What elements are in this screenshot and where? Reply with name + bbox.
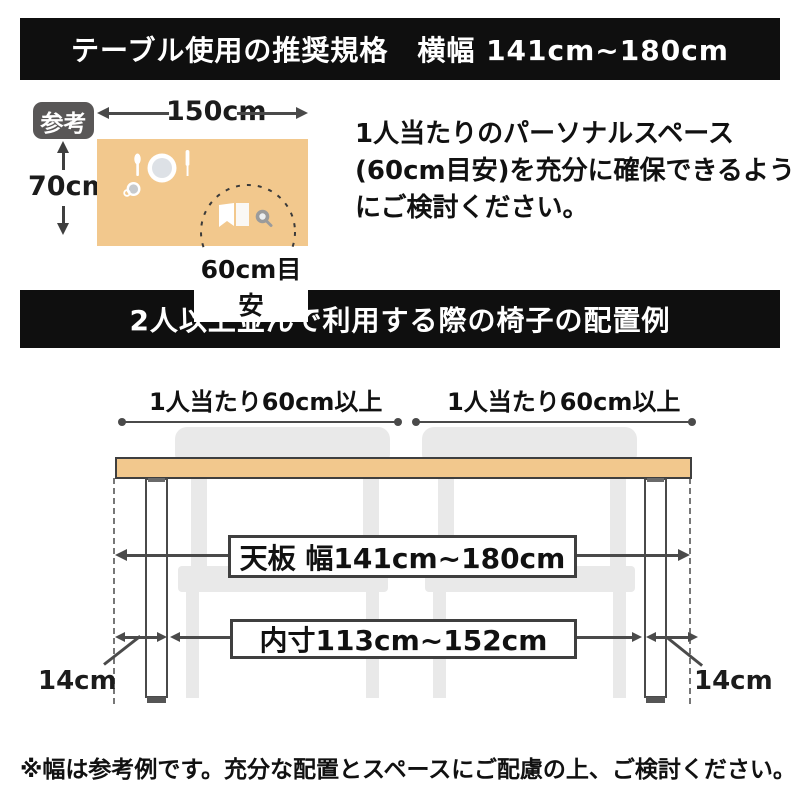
right-arrowhead-icon bbox=[678, 549, 690, 561]
personal-space-label: 60cm目安 bbox=[194, 250, 308, 322]
inner-width-box: 内寸113cm~152cm bbox=[230, 619, 577, 659]
edge-projection-line-right bbox=[689, 478, 691, 704]
leg-joint bbox=[148, 478, 165, 482]
leg-offset-label-left: 14cm bbox=[38, 666, 108, 696]
dimension-line bbox=[654, 636, 690, 639]
tableware-illustration bbox=[0, 0, 800, 300]
dimension-line bbox=[122, 421, 398, 424]
table-leg-right bbox=[644, 478, 667, 698]
tabletop-front bbox=[115, 457, 692, 479]
dimension-dot bbox=[688, 418, 696, 426]
infographic-page: テーブル使用の推奨規格 横幅 141cm~180cm 参考 150cm 70cm bbox=[0, 0, 800, 800]
right-arrowhead-icon bbox=[632, 632, 642, 642]
cup-icon bbox=[124, 182, 140, 196]
right-arrowhead-icon bbox=[157, 632, 167, 642]
leg-joint bbox=[647, 478, 664, 482]
chair-post bbox=[610, 478, 626, 573]
table-leg-left bbox=[145, 478, 168, 698]
per-person-label-right: 1人当たり60cm以上 bbox=[447, 382, 667, 417]
dimension-line bbox=[179, 636, 230, 639]
spoon-icon bbox=[134, 154, 140, 177]
per-person-label-left: 1人当たり60cm以上 bbox=[149, 382, 369, 417]
leg-foot bbox=[646, 697, 665, 703]
chair-leg bbox=[613, 592, 626, 698]
plate-inner bbox=[152, 158, 172, 178]
footnote: ※幅は参考例です。充分な配置とスペースにご配慮の上、ご検討ください。 bbox=[20, 750, 780, 784]
dimension-line bbox=[577, 554, 679, 557]
chair-post bbox=[191, 478, 207, 573]
dimension-line bbox=[126, 554, 228, 557]
magnifier-icon bbox=[256, 210, 271, 226]
tabletop-width-box: 天板 幅141cm~180cm bbox=[228, 535, 577, 578]
leg-offset-label-right: 14cm bbox=[694, 666, 764, 696]
dimension-dot bbox=[394, 418, 402, 426]
inner-width-label: 内寸113cm~152cm bbox=[260, 619, 548, 659]
right-arrowhead-icon bbox=[688, 632, 698, 642]
leg-foot bbox=[147, 697, 166, 703]
chair-backrest bbox=[175, 427, 390, 459]
book-icon bbox=[219, 203, 249, 227]
dimension-line bbox=[416, 421, 692, 424]
tabletop-width-label: 天板 幅141cm~180cm bbox=[240, 537, 566, 577]
knife-icon bbox=[186, 150, 190, 176]
dimension-line bbox=[577, 636, 633, 639]
chair-backrest bbox=[422, 427, 637, 459]
chair-leg bbox=[186, 592, 199, 698]
